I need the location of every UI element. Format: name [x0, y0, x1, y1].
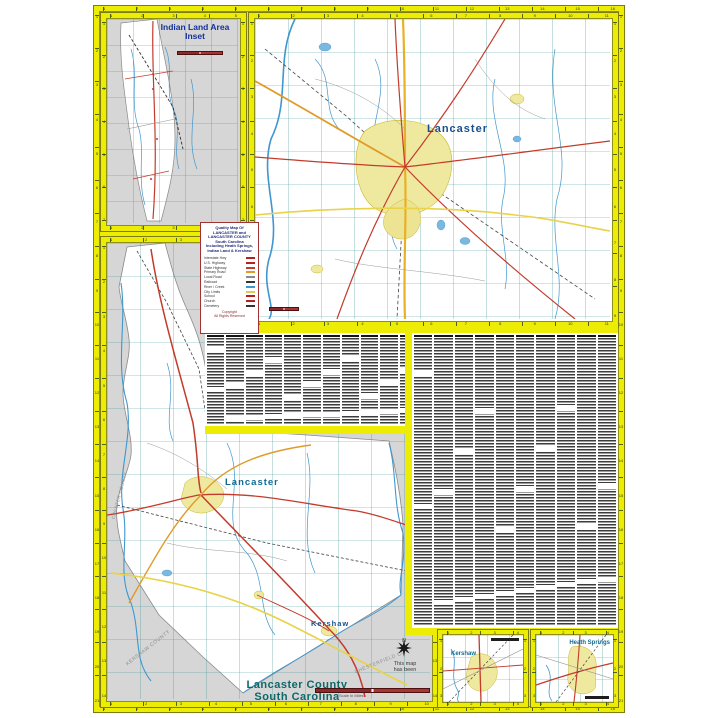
tick-band: 123456789 [613, 22, 617, 318]
index-column [414, 335, 432, 626]
index-column [516, 335, 534, 626]
tick-band: 123456789101112131415161718192021 [619, 15, 623, 703]
legend-symbol [246, 281, 255, 283]
index-column [496, 335, 514, 626]
indian-land-drawing [107, 19, 238, 223]
index-column [226, 335, 243, 424]
main-map: Lancaster [255, 19, 612, 321]
indian-land-inset-map: Indian Land Area Inset [107, 19, 240, 225]
tick-band: 1234567 [102, 22, 106, 222]
map-sheet-page: Lancaster Kershaw KERSHAW COUNTY CHESTER… [0, 0, 718, 718]
legend-footer: CopyrightAll Rights Reserved [204, 310, 255, 318]
indian-land-scale-bar [177, 51, 223, 55]
tick-band: 1234567891011121314 [102, 246, 106, 698]
legend-symbol [246, 300, 255, 302]
main-map-panel: Lancaster 123456789101112345678910111234… [249, 13, 618, 327]
county-scale-caption: Scale in Miles [339, 694, 364, 698]
kershaw-inset-panel: Kershaw 12341234123123 [438, 630, 528, 707]
kershaw-inset-map: Kershaw [443, 635, 523, 702]
index-column [303, 335, 320, 424]
main-map-drawing [255, 19, 610, 319]
compass-rose: N [395, 639, 413, 644]
tick-band: 1234 [540, 702, 609, 706]
index-column [557, 335, 575, 626]
index-column [342, 335, 359, 424]
legend-item: Cemetery [204, 304, 255, 309]
tick-band: 1234567891011 [258, 14, 609, 18]
heath-springs-inset-map: Heath Springs [536, 635, 613, 702]
legend-symbol [246, 276, 255, 278]
tick-band: 12345 [110, 14, 237, 18]
legend-items: Interstate HwyU.S. HighwayState HighwayP… [204, 256, 255, 309]
tick-band: 12345678910111213141516 [103, 707, 615, 711]
index-column [536, 335, 554, 626]
index-column [207, 335, 224, 424]
index-column [380, 335, 397, 424]
tick-band: 1234 [447, 702, 519, 706]
index-column [361, 335, 378, 424]
legend-symbol [246, 271, 255, 273]
index-column [475, 335, 493, 626]
tick-band: 123 [613, 639, 617, 698]
index-column [434, 335, 452, 626]
tick-band: 123 [523, 639, 527, 698]
index-column [455, 335, 473, 626]
heath-springs-inset-scale-bar [585, 696, 609, 699]
tick-band: 1234567 [241, 22, 245, 222]
tick-band: 123456789101112131415161718192021 [95, 15, 99, 703]
legend-title: Quality Map OfLANCASTER andLANCASTER COU… [204, 226, 255, 254]
tick-band: 12345678910 [110, 702, 429, 706]
legend-symbol [246, 257, 255, 259]
street-index-right [405, 326, 618, 635]
indian-land-inset-panel: Indian Land Area Inset 12345123451234567… [101, 13, 246, 231]
street-index-top [205, 326, 438, 434]
heath-springs-inset-drawing [536, 635, 613, 702]
index-column [598, 335, 616, 626]
compass-rose-icon [395, 639, 413, 657]
county-scale-bar [315, 688, 430, 693]
legend-symbol [246, 286, 255, 288]
map-sheet: Lancaster Kershaw KERSHAW COUNTY CHESTER… [93, 5, 625, 713]
kershaw-inset-scale-bar [491, 638, 519, 641]
legend-box: Quality Map OfLANCASTER andLANCASTER COU… [200, 222, 259, 334]
legend-symbol [246, 262, 255, 264]
legend-symbol [246, 267, 255, 269]
index-column [577, 335, 595, 626]
index-column [323, 335, 340, 424]
tick-band: 12345678910111213141516 [103, 7, 615, 11]
heath-springs-inset-panel: Heath Springs 12341234123123 [531, 630, 618, 707]
index-column [284, 335, 301, 424]
main-map-scale-bar [269, 307, 299, 311]
legend-symbol [246, 291, 255, 293]
kershaw-inset-drawing [443, 635, 523, 702]
index-column [265, 335, 282, 424]
index-column [246, 335, 263, 424]
legend-symbol [246, 305, 255, 307]
legend-symbol [246, 295, 255, 297]
